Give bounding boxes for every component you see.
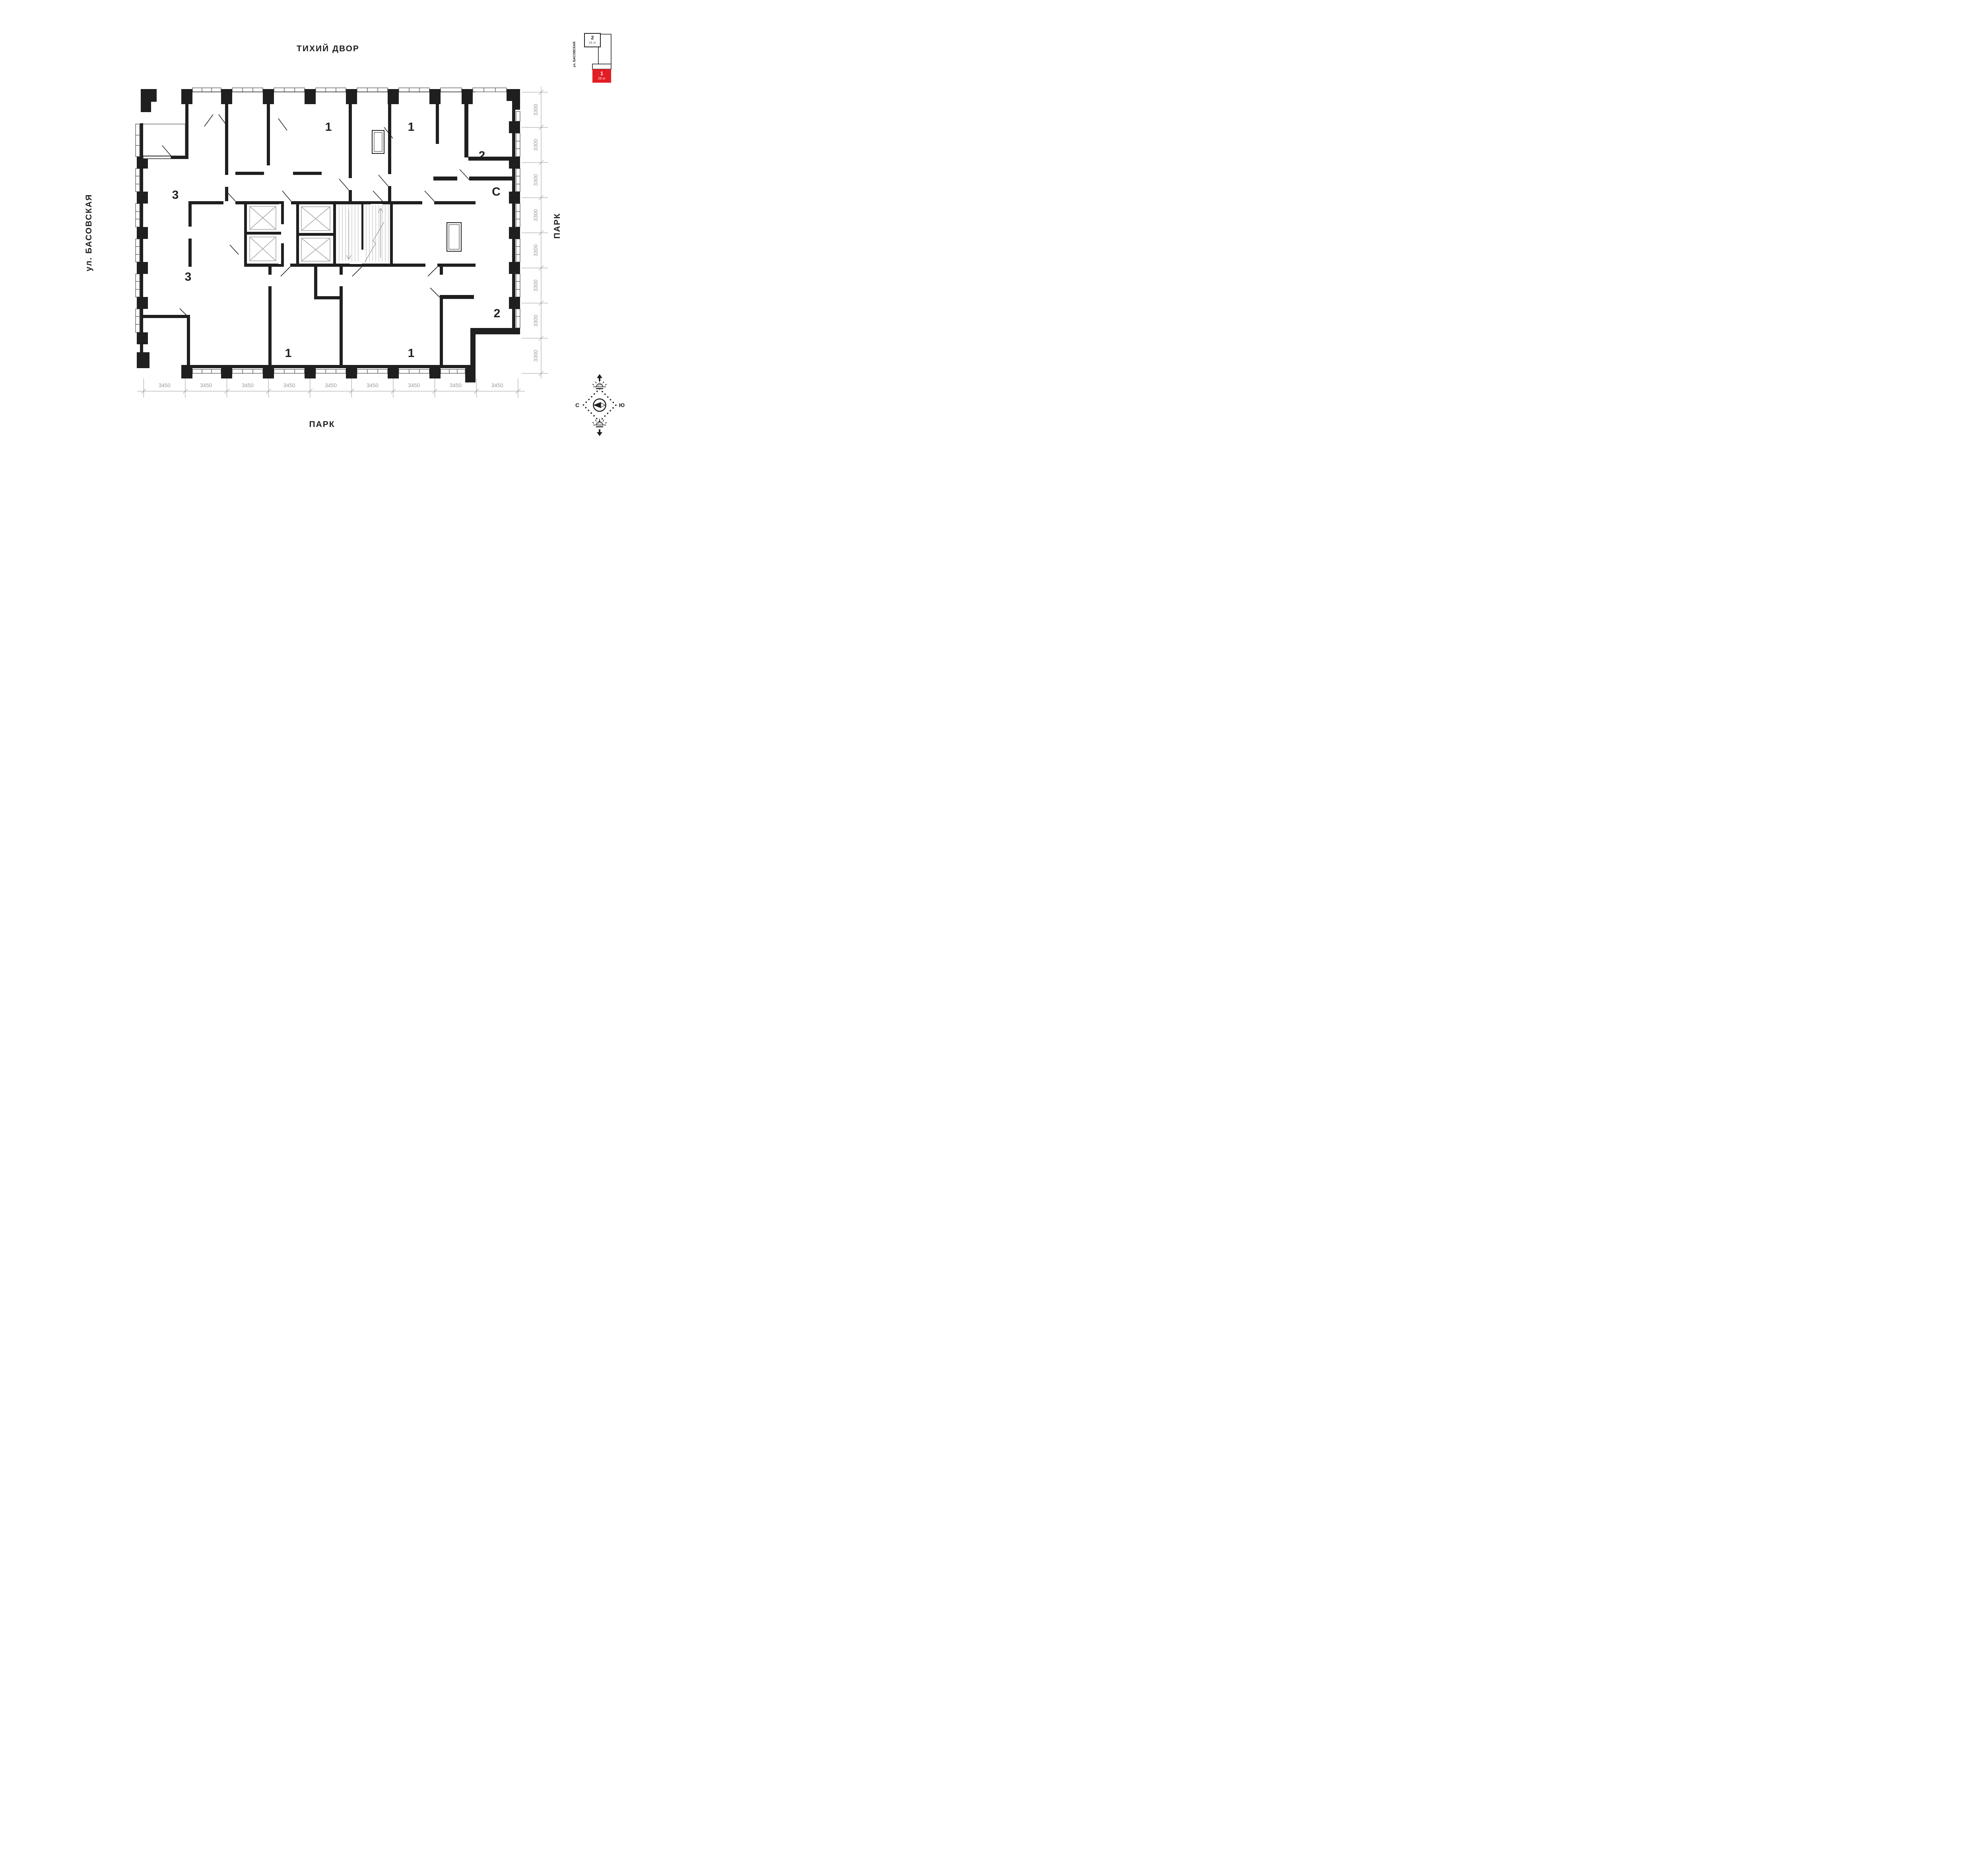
dim-value: 3450 <box>491 382 503 388</box>
dim-value: 3300 <box>533 139 539 151</box>
dim-value: 3450 <box>367 382 379 388</box>
site-minimap: ул. БАСОВСКАЯ 2 16 эт 1 29 эт <box>573 33 611 83</box>
minimap-building-number: 1 <box>600 70 603 76</box>
sunrise-icon <box>592 380 607 389</box>
dim-value: 3300 <box>533 279 539 291</box>
stair-break-line <box>365 222 384 262</box>
compass-north-label: С <box>575 402 579 408</box>
apartment-label[interactable]: 1 <box>285 347 292 360</box>
elevator-icon <box>301 238 330 261</box>
apartment-label[interactable]: 2 <box>494 307 501 320</box>
apartment-label[interactable]: 2 <box>479 149 485 162</box>
dim-value: 3300 <box>533 244 539 256</box>
label-park-bottom: ПАРК <box>309 420 335 429</box>
elevator-icon <box>250 206 276 229</box>
label-street-basovskaya: ул. БАСОВСКАЯ <box>84 194 93 272</box>
dim-value: 3450 <box>159 382 171 388</box>
dim-value: 3300 <box>533 315 539 327</box>
dim-value: 3450 <box>450 382 462 388</box>
staircase <box>339 205 388 262</box>
compass-south-arrow-icon <box>597 429 602 436</box>
floor-plan-drawing: ТИХИЙ ДВОР ул. БАСОВСКАЯ ПАРК ПАРК <box>0 0 655 463</box>
compass-south-label: Ю <box>619 402 625 408</box>
vent-shafts <box>372 130 461 251</box>
apartment-label[interactable]: 1 <box>325 120 332 134</box>
dim-value: 3300 <box>533 209 539 221</box>
label-quiet-yard: ТИХИЙ ДВОР <box>297 44 359 53</box>
dim-value: 3450 <box>283 382 295 388</box>
apartment-label[interactable]: 3 <box>172 188 179 202</box>
minimap-building-2[interactable]: 2 16 эт <box>584 33 600 47</box>
elevator-icon <box>250 237 276 261</box>
dim-value: 3450 <box>200 382 212 388</box>
dim-value: 3450 <box>325 382 337 388</box>
apartment-label[interactable]: 1 <box>408 347 415 360</box>
minimap-building-number: 2 <box>591 35 594 41</box>
dim-value: 3300 <box>533 174 539 186</box>
dim-value: 3450 <box>242 382 254 388</box>
dim-value: 3300 <box>533 104 539 116</box>
sunset-icon <box>592 419 607 427</box>
dim-value: 3300 <box>533 350 539 362</box>
dim-value: 3450 <box>408 382 420 388</box>
apartment-label[interactable]: 1 <box>408 120 415 134</box>
apartment-label[interactable]: С <box>492 185 501 198</box>
elevator-icon <box>301 207 330 231</box>
minimap-site-outline <box>600 34 611 64</box>
minimap-building-floors: 29 эт <box>598 77 606 80</box>
compass-north-arrow-icon <box>597 374 602 381</box>
minimap-building-1-current[interactable]: 1 29 эт <box>592 69 611 83</box>
minimap-building-floors: 16 эт <box>589 41 596 45</box>
apartment-label[interactable]: 3 <box>185 270 192 283</box>
minimap-street-label: ул. БАСОВСКАЯ <box>573 42 576 68</box>
floor-plan-page: ТИХИЙ ДВОР ул. БАСОВСКАЯ ПАРК ПАРК <box>0 0 655 463</box>
compass: С Ю <box>575 374 625 436</box>
minimap-stylobate <box>592 64 611 69</box>
label-park-right: ПАРК <box>553 213 562 239</box>
dimension-chain-right: 3300 3300 3300 3300 3300 3300 3300 3300 <box>522 87 548 378</box>
